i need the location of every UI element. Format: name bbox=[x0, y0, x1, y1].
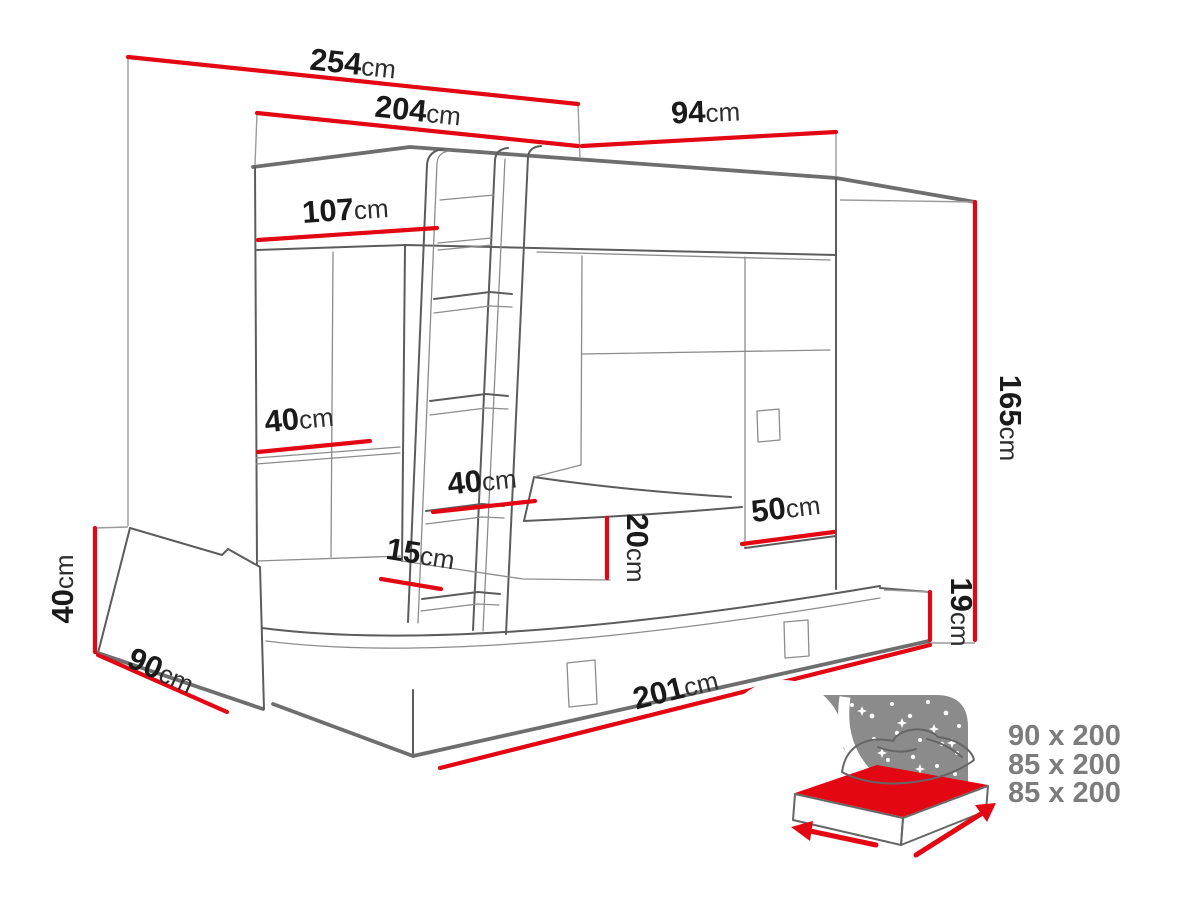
drawer-deck-front-edge bbox=[262, 586, 880, 636]
furniture-outline bbox=[98, 146, 975, 756]
mattress-left-edge bbox=[524, 477, 534, 521]
dim-label-50: 50cm bbox=[749, 486, 822, 529]
dim-label-94: 94cm bbox=[670, 93, 741, 131]
dim-label-40-height: 40cm bbox=[45, 554, 80, 623]
door-divider-horizontal-2 bbox=[256, 453, 400, 464]
drawer-handle-left bbox=[567, 660, 597, 707]
ladder-shelf-4b bbox=[430, 408, 508, 415]
extension-lines bbox=[95, 57, 975, 643]
bed-pictogram bbox=[722, 680, 996, 855]
platform-front-left-corner bbox=[260, 567, 264, 709]
dim-label-19: 19cm bbox=[944, 577, 979, 646]
pillar-bottom-edge bbox=[257, 556, 402, 561]
dim-line-15 bbox=[381, 579, 441, 589]
mattress-top-edge bbox=[534, 477, 731, 497]
ext-19-top bbox=[884, 590, 930, 592]
ladder-right-rail-side bbox=[506, 146, 541, 634]
niche-back-left-corner bbox=[581, 256, 582, 465]
cabinet-underside-edge bbox=[257, 245, 836, 255]
ladder-shelf-4a bbox=[430, 394, 508, 401]
dim-label-90: 90cm bbox=[123, 640, 200, 700]
drawer-handle-right bbox=[784, 620, 809, 658]
cabinet-left-edge bbox=[255, 167, 257, 565]
mattress-size-list: 90 x 200 85 x 200 85 x 200 bbox=[1008, 720, 1121, 809]
platform-left-face bbox=[130, 528, 260, 567]
bunk-bed-diagram-svg: 254cm 204cm 94cm 107cm 40cm 40cm 15cm 20… bbox=[0, 0, 1200, 899]
platform-left-edge bbox=[98, 528, 130, 653]
size-entry-3: 85 x 200 bbox=[1008, 777, 1121, 809]
cabinet-top-edge bbox=[253, 147, 975, 202]
dim-label-40-door: 40cm bbox=[263, 398, 335, 439]
dimension-diagram: 254cm 204cm 94cm 107cm 40cm 40cm 15cm 20… bbox=[0, 0, 1200, 899]
dim-label-165: 165cm bbox=[993, 375, 1028, 461]
dim-line-107 bbox=[258, 228, 437, 240]
dim-line-94 bbox=[582, 132, 836, 146]
ladder-shelf-5b bbox=[426, 517, 504, 524]
ext-204-left bbox=[255, 113, 257, 165]
mattress-back-edge bbox=[534, 465, 581, 477]
drawer-lip-edge bbox=[266, 598, 880, 648]
drawer-left-bottom-edge bbox=[273, 704, 413, 756]
pullout-arrow-left bbox=[810, 831, 876, 845]
dim-label-15: 15cm bbox=[384, 531, 458, 576]
ladder-shelf-3b bbox=[434, 306, 512, 313]
dim-label-20: 20cm bbox=[620, 513, 655, 582]
dim-label-40-ladder: 40cm bbox=[446, 460, 518, 502]
dim-label-107: 107cm bbox=[301, 189, 390, 230]
right-panel-handle bbox=[757, 409, 780, 442]
size-entry-1: 90 x 200 bbox=[1008, 720, 1121, 752]
pullout-arrow-left-head bbox=[791, 821, 813, 841]
ladder-rung-2a bbox=[438, 238, 492, 243]
pullout-arrow-right-head bbox=[975, 803, 996, 822]
ladder-shelf-6a bbox=[422, 592, 500, 599]
dim-line-40-ladder bbox=[433, 501, 535, 512]
ladder-shelf-6b bbox=[421, 604, 499, 611]
ext-254-204 bbox=[578, 104, 580, 158]
ladder-shelf-3a bbox=[434, 292, 512, 299]
pullout-arrow-right bbox=[916, 812, 984, 855]
ext-40h-top bbox=[95, 527, 128, 528]
pillar-right-edge bbox=[402, 246, 405, 561]
niche-backboard-line bbox=[582, 350, 830, 354]
ladder-rung-1 bbox=[440, 195, 494, 200]
